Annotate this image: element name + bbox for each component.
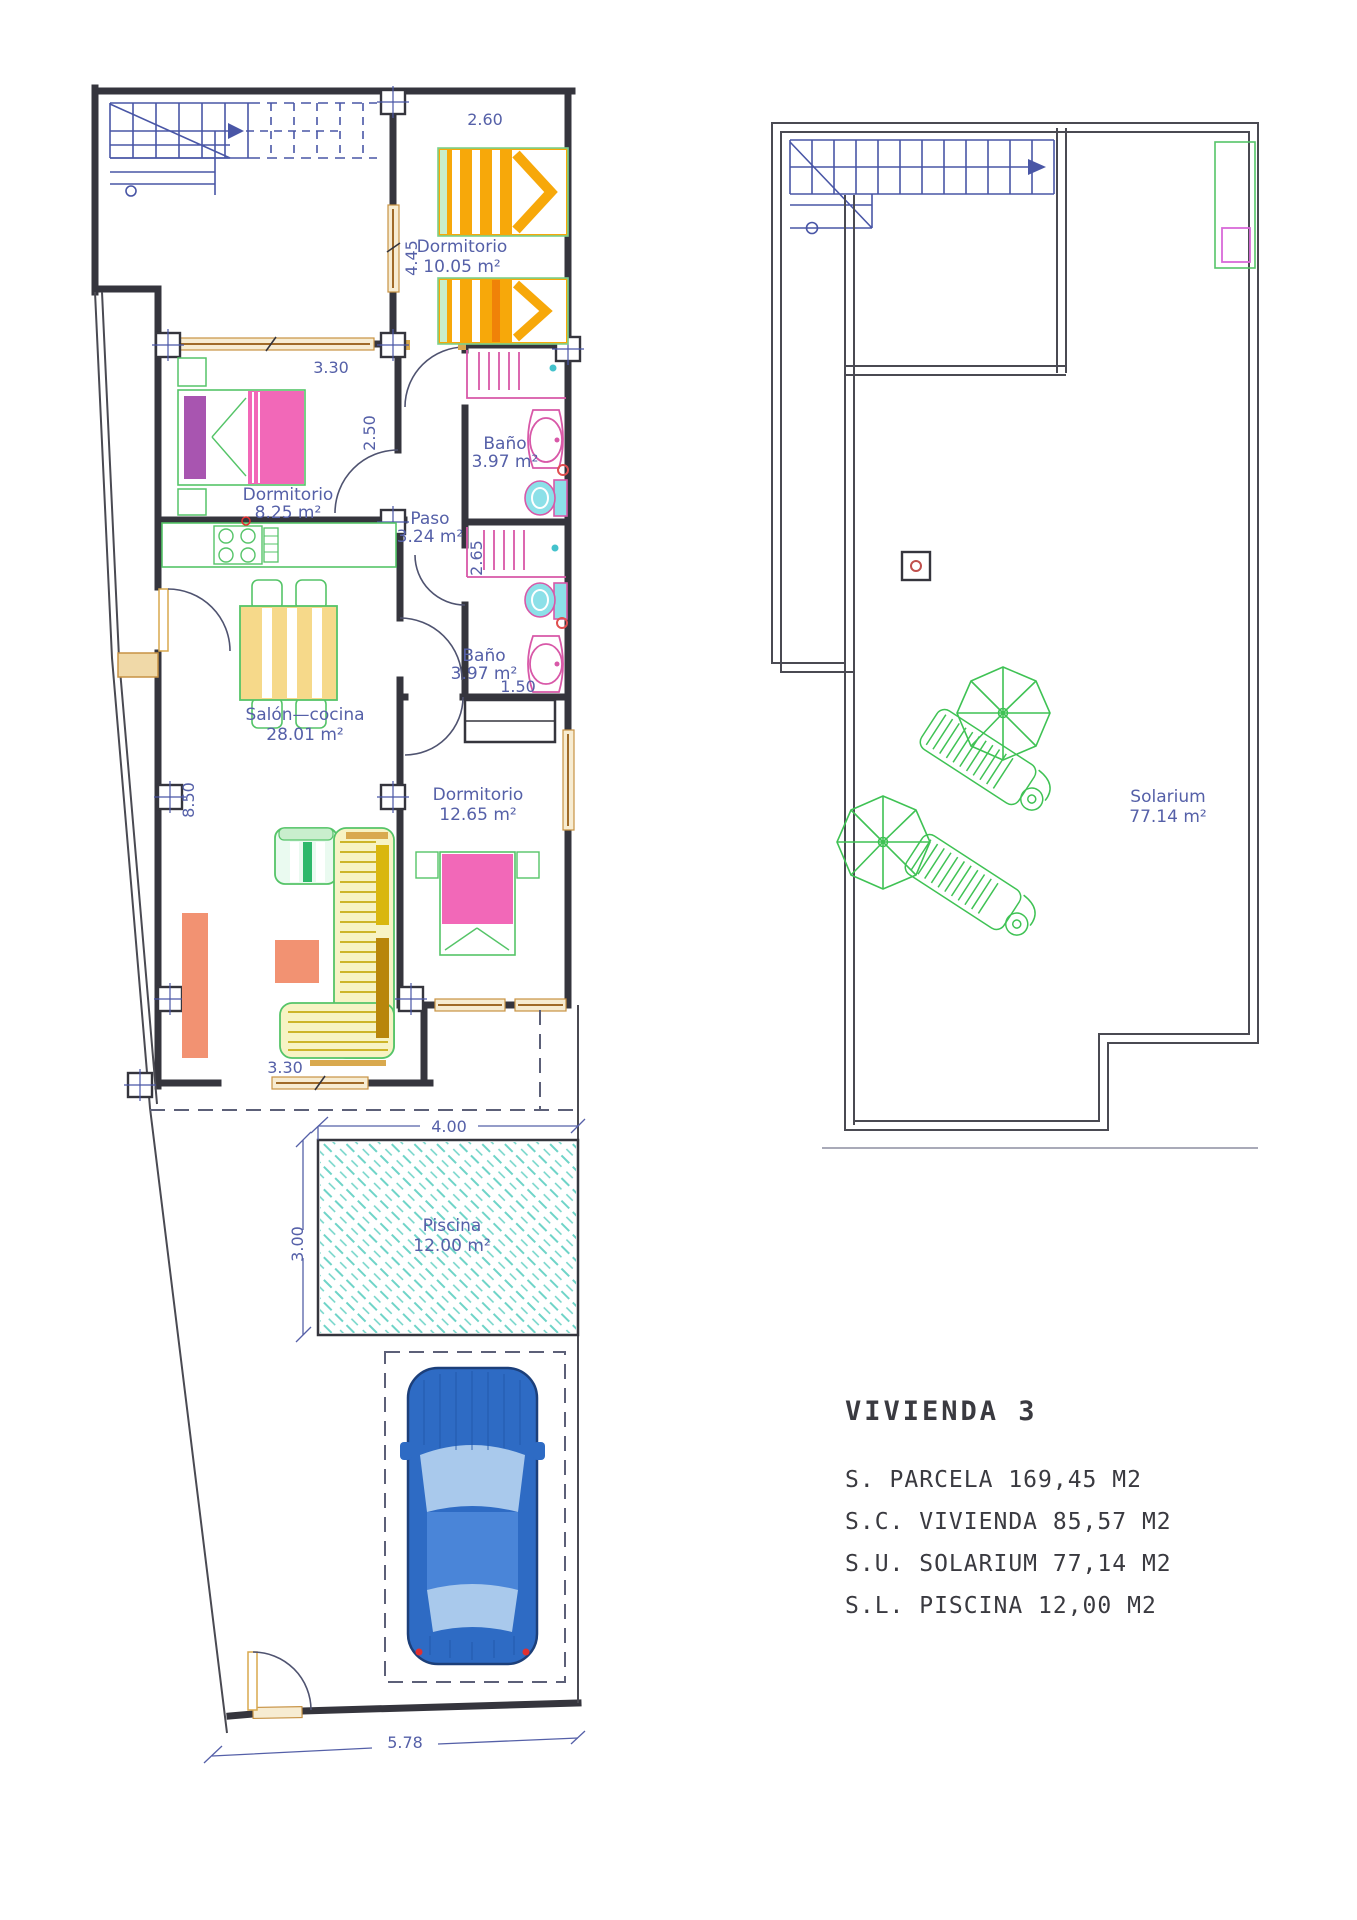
car-icon bbox=[400, 1368, 545, 1664]
room-label-piscina: Piscina bbox=[423, 1216, 482, 1236]
column-icon bbox=[124, 1069, 156, 1101]
column-icon bbox=[377, 781, 409, 813]
porch-wall bbox=[118, 653, 158, 677]
door-icon bbox=[415, 555, 465, 605]
floor-plan-drawing: 4.00 3.00 bbox=[0, 0, 1357, 1920]
room-area-dormitorio3: 12.65 m² bbox=[439, 805, 516, 825]
floor-plan-sheet: 4.00 3.00 bbox=[0, 0, 1357, 1920]
door-icon bbox=[335, 450, 398, 513]
window-icon bbox=[253, 1707, 302, 1719]
column-icon bbox=[154, 983, 186, 1015]
legend-line-parcela: S. PARCELA 169,45 M2 bbox=[845, 1467, 1142, 1493]
dimension-salon-door: 3.30 bbox=[267, 1058, 303, 1077]
dimension-bano2-width: 1.50 bbox=[500, 677, 536, 696]
column-icon bbox=[395, 983, 427, 1015]
window-icon bbox=[272, 1076, 368, 1090]
room-label-dormitorio3: Dormitorio bbox=[433, 785, 524, 805]
window-icon bbox=[435, 999, 566, 1011]
bathroom1-fixtures bbox=[467, 350, 568, 516]
armchair-icon bbox=[275, 828, 337, 884]
window-icon bbox=[563, 730, 574, 830]
room-area-paso: 3.24 m² bbox=[397, 527, 464, 547]
dimension-pool-height: 3.00 bbox=[288, 1226, 307, 1262]
room-area-bano1: 3.97 m² bbox=[472, 452, 539, 472]
staircase-icon bbox=[110, 103, 377, 196]
door-icon bbox=[248, 1652, 311, 1710]
legend-title: VIVIENDA 3 bbox=[845, 1396, 1038, 1427]
dimension-bedroom2-width: 3.30 bbox=[313, 358, 349, 377]
column-icon bbox=[377, 329, 409, 361]
stair-direction-arrow bbox=[1028, 159, 1046, 175]
sun-lounger-icon bbox=[917, 706, 1058, 820]
dimension-bano2-height: 2.65 bbox=[467, 540, 486, 576]
legend: VIVIENDA 3 S. PARCELA 169,45 M2 S.C. VIV… bbox=[845, 1396, 1172, 1619]
room-label-paso: Paso bbox=[410, 509, 449, 529]
kitchen-counter-icon bbox=[162, 517, 396, 567]
door-icon bbox=[159, 589, 230, 651]
ground-floor-plan: 4.00 3.00 bbox=[95, 86, 585, 1763]
legend-line-solarium: S.U. SOLARIUM 77,14 M2 bbox=[845, 1551, 1172, 1577]
room-area-salon: 28.01 m² bbox=[266, 725, 343, 745]
sideboard-icon bbox=[182, 913, 208, 1058]
dimension-plot-width: 5.78 bbox=[387, 1733, 423, 1752]
double-bed-icon bbox=[416, 852, 539, 955]
door-icon bbox=[405, 347, 465, 407]
dimension-bedroom2-height: 2.50 bbox=[360, 415, 379, 451]
stair-direction-arrow bbox=[228, 123, 244, 139]
room-label-dormitorio1: Dormitorio bbox=[417, 237, 508, 257]
legend-line-vivienda: S.C. VIVIENDA 85,57 M2 bbox=[845, 1509, 1172, 1535]
coffee-table-icon bbox=[275, 940, 319, 983]
single-bed-icon bbox=[438, 148, 568, 236]
room-area-piscina: 12.00 m² bbox=[413, 1236, 490, 1256]
column-icon bbox=[152, 329, 184, 361]
dimension-salon-height: 8.50 bbox=[179, 782, 198, 818]
wardrobe-icon bbox=[465, 700, 555, 742]
plot-width-dimension: 5.78 bbox=[204, 1731, 585, 1763]
room-label-salon: Salón—cocina bbox=[245, 705, 364, 725]
legend-line-piscina: S.L. PISCINA 12,00 M2 bbox=[845, 1593, 1157, 1619]
shower-icon bbox=[467, 350, 566, 398]
sun-lounger-icon bbox=[902, 831, 1043, 945]
room-label-dormitorio2: Dormitorio bbox=[243, 485, 334, 505]
room-label-bano1: Baño bbox=[483, 434, 526, 454]
room-label-solarium: Solarium bbox=[1130, 787, 1205, 807]
column-icon bbox=[377, 86, 409, 118]
toilet-icon bbox=[525, 480, 567, 516]
toilet-icon bbox=[525, 583, 567, 619]
window-icon bbox=[166, 337, 374, 351]
chimney-icon bbox=[902, 552, 930, 580]
room-label-bano2: Baño bbox=[462, 646, 505, 666]
parasol-icon bbox=[837, 796, 930, 889]
stairwell-opening bbox=[845, 128, 1066, 1125]
dimension-pool-width: 4.00 bbox=[431, 1117, 467, 1136]
window-icon bbox=[387, 205, 400, 292]
garden: 4.00 3.00 bbox=[150, 1010, 585, 1763]
room-area-dormitorio1: 10.05 m² bbox=[423, 257, 500, 277]
solarium-plan: Solarium 77.14 m² bbox=[772, 123, 1258, 1148]
room-area-dormitorio2: 8.25 m² bbox=[255, 503, 322, 523]
door-icon bbox=[405, 697, 463, 755]
room-area-solarium: 77.14 m² bbox=[1129, 807, 1206, 827]
dimension-bedroom1-width: 2.60 bbox=[467, 110, 503, 129]
staircase-icon bbox=[790, 140, 1054, 234]
single-bed-icon bbox=[438, 278, 568, 344]
